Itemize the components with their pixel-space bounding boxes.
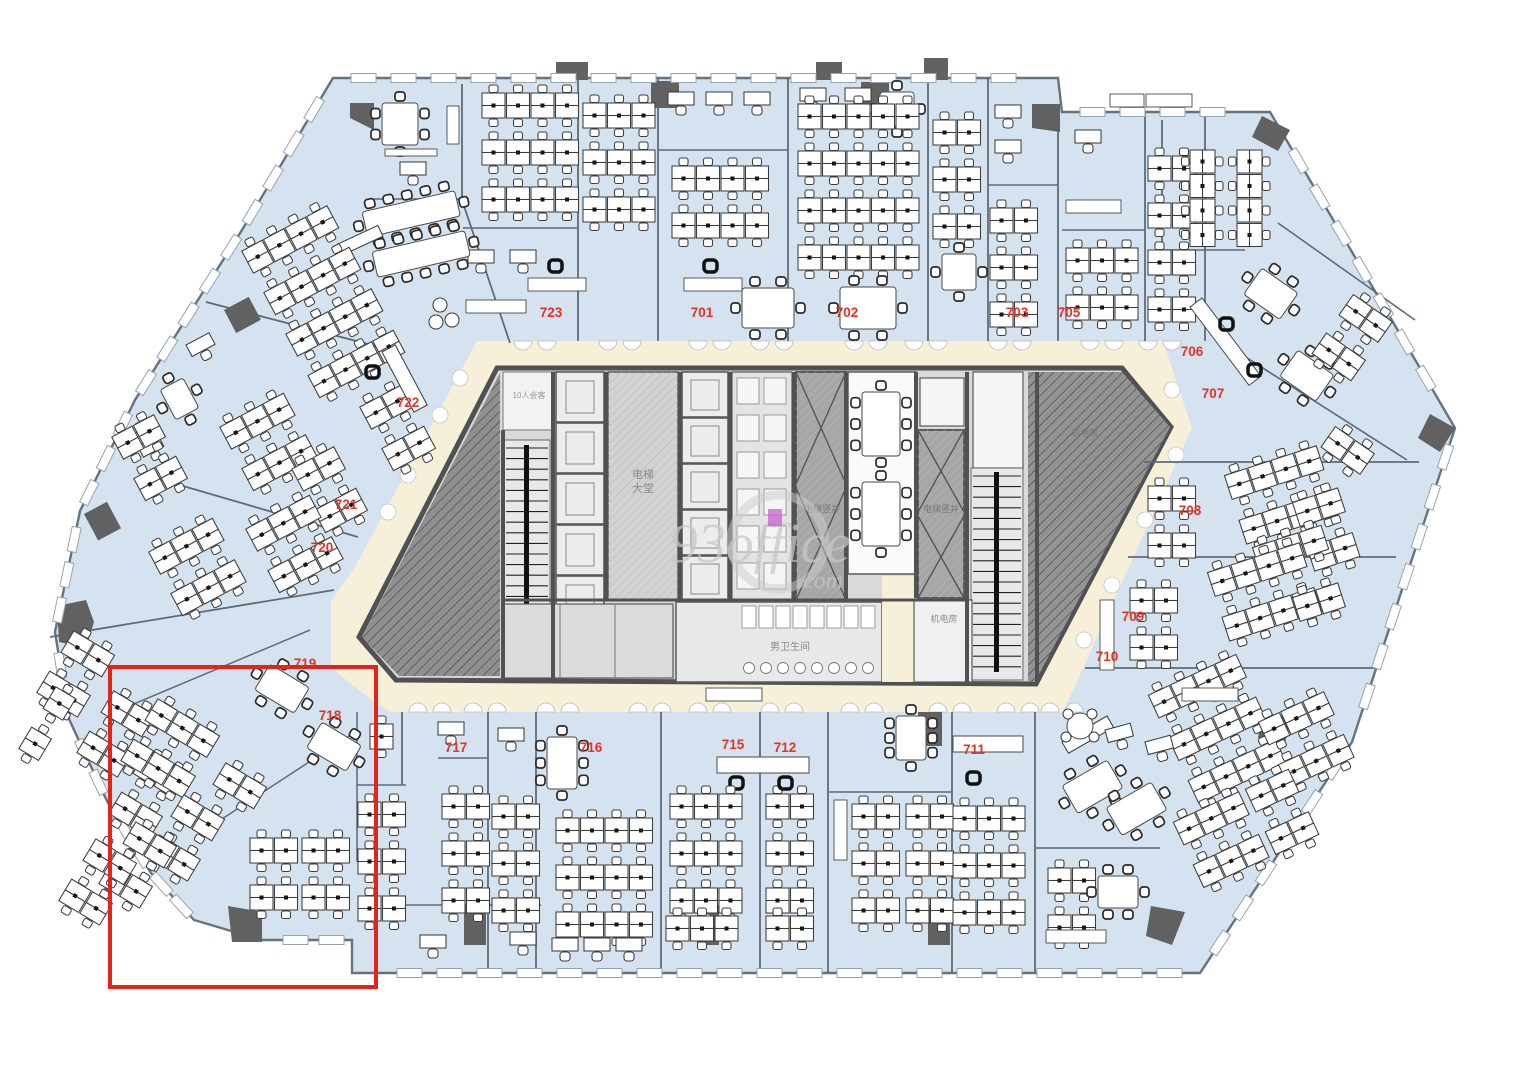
svg-text:715: 715 xyxy=(722,737,745,752)
svg-text:708: 708 xyxy=(1179,503,1202,518)
svg-text:722: 722 xyxy=(397,395,420,410)
svg-text:705: 705 xyxy=(1058,305,1081,320)
svg-text:大堂: 大堂 xyxy=(632,481,654,495)
svg-text:电梯竖井: 电梯竖井 xyxy=(923,503,959,514)
svg-text:93office: 93office xyxy=(670,513,850,575)
svg-text:703: 703 xyxy=(1006,305,1029,320)
svg-text:710: 710 xyxy=(1096,649,1119,664)
svg-text:701: 701 xyxy=(691,305,714,320)
svg-text:720: 720 xyxy=(311,540,334,555)
svg-text:.com: .com xyxy=(797,568,843,594)
svg-text:718: 718 xyxy=(319,708,342,723)
svg-text:电梯: 电梯 xyxy=(632,468,654,481)
svg-text:721: 721 xyxy=(335,497,358,512)
svg-text:707: 707 xyxy=(1202,386,1225,401)
svg-text:男卫生间: 男卫生间 xyxy=(770,640,810,653)
svg-text:711: 711 xyxy=(963,742,985,757)
svg-text:706: 706 xyxy=(1181,344,1204,359)
svg-text:10人会客: 10人会客 xyxy=(513,390,546,400)
svg-text:702: 702 xyxy=(836,305,859,320)
svg-text:机电房: 机电房 xyxy=(1071,427,1098,438)
svg-text:716: 716 xyxy=(580,740,603,755)
svg-text:717: 717 xyxy=(445,740,468,755)
svg-text:712: 712 xyxy=(774,740,797,755)
svg-text:723: 723 xyxy=(540,305,563,320)
svg-text:709: 709 xyxy=(1122,609,1145,624)
svg-text:机电房: 机电房 xyxy=(930,613,957,624)
